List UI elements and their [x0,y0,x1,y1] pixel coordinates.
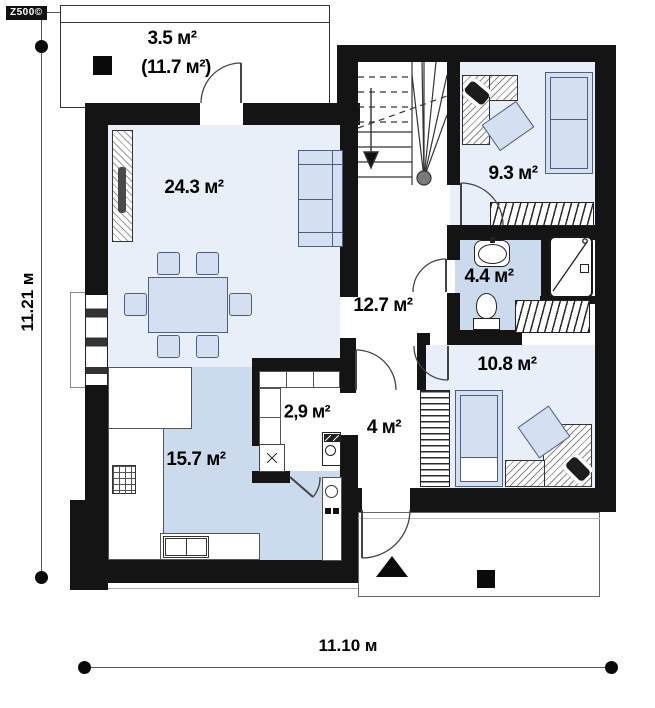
wall [85,560,358,583]
sofa [298,150,343,247]
bedroom-lower-area-label: 10.8 м² [477,354,536,376]
bedroom-upper-area-label: 9.3 м² [488,163,537,185]
counter-sink-round [325,485,338,498]
window-sill [70,292,86,388]
kitchen-area-label: 15.7 м² [166,449,225,471]
staircase [358,62,447,185]
left-dimension-line [41,46,42,578]
shelf-divider [259,417,281,418]
wall [337,45,616,62]
terrace-marker-square [93,56,112,75]
entry-area-label: 4 м² [367,417,401,439]
sofa-armrest-line [299,232,342,233]
kitchen-door [356,350,396,390]
bed-footer [460,457,498,482]
desk [505,460,545,487]
shelf-divider [313,371,314,388]
bed [455,390,503,487]
entrance-marker-triangle [376,556,408,577]
wall [450,330,522,345]
wall [252,471,290,483]
z500-logo: Z500© [6,6,47,20]
left-dimension-label: 11.21 м [18,273,38,332]
living-room-area-label: 24.3 м² [164,177,223,199]
sofa-cushion-line [299,199,333,200]
boiler-icon [259,444,285,472]
dining-chair [157,252,180,275]
porch-step-line [358,518,600,519]
sink-basin [165,538,187,556]
terrace-edge-line [60,22,330,23]
dimension-endpoint [78,661,91,674]
fireplace-insert [118,167,126,213]
wall [340,435,358,583]
hallway-area-label: 12.7 м² [353,295,412,317]
wardrobe [490,202,594,226]
bathroom-area-label: 4.4 м² [464,266,513,288]
pantry-shelf-top [259,371,340,388]
pantry-area-label: 2,9 м² [284,402,330,423]
counter-knob [325,508,331,514]
sink-basin [186,538,207,556]
kitchen-counter-top [108,367,192,429]
bottom-dimension-line [84,667,612,668]
shower-mixer-icon [580,264,589,273]
dining-table [148,277,228,333]
wall [410,488,616,512]
shelf-divider [286,371,287,388]
bottom-dimension-label: 11.10 м [319,636,378,656]
dining-chair [196,252,219,275]
dimension-endpoint [35,40,48,53]
entrance-marker-square [477,570,495,588]
wall [595,45,616,512]
bathroom-door [413,259,446,292]
stair-newel-post [417,171,431,185]
toilet-tank [473,318,500,330]
wall [85,103,108,295]
dining-chair [196,335,219,358]
shower [549,236,593,298]
sofa-armrest-line [299,164,342,165]
dining-chair [157,335,180,358]
terrace-total-area-label: (11.7 м²) [141,57,211,79]
bathroom-sink [474,240,510,267]
stairs-down-arrow [364,88,378,168]
burner-icon [324,434,332,442]
toilet [473,293,501,331]
kitchen-counter-left [108,428,164,560]
wall [252,358,259,446]
wall [447,45,460,185]
counter-knob [333,508,339,514]
living-room-window [85,295,108,385]
wardrobe [515,300,590,333]
dining-chair [229,293,252,316]
stove [322,432,341,466]
floor-plan-canvas: Z500© 11.21 м 11.10 м 3.5 м² (11.7 м²) [0,0,655,708]
hob-icon [112,465,136,494]
mattress-line [550,77,588,169]
kitchen-exterior-line [85,588,358,589]
burner-icon [332,434,340,442]
dimension-endpoint [605,661,618,674]
mattress-line [460,395,498,459]
wardrobe [420,390,450,487]
terrace-area-label: 3.5 м² [147,28,196,50]
sink-bowl [478,244,507,264]
oven-ring-icon [325,445,336,456]
wall [252,358,356,371]
pillow-line [550,119,588,120]
sink-tap [490,237,495,243]
dimension-endpoint [35,571,48,584]
kitchen-sink [163,536,209,558]
wall [417,333,430,345]
dining-chair [124,293,147,316]
bed [545,72,593,174]
fireplace [112,130,133,242]
toilet-bowl [476,293,497,319]
terrace-door-opening [200,103,243,125]
